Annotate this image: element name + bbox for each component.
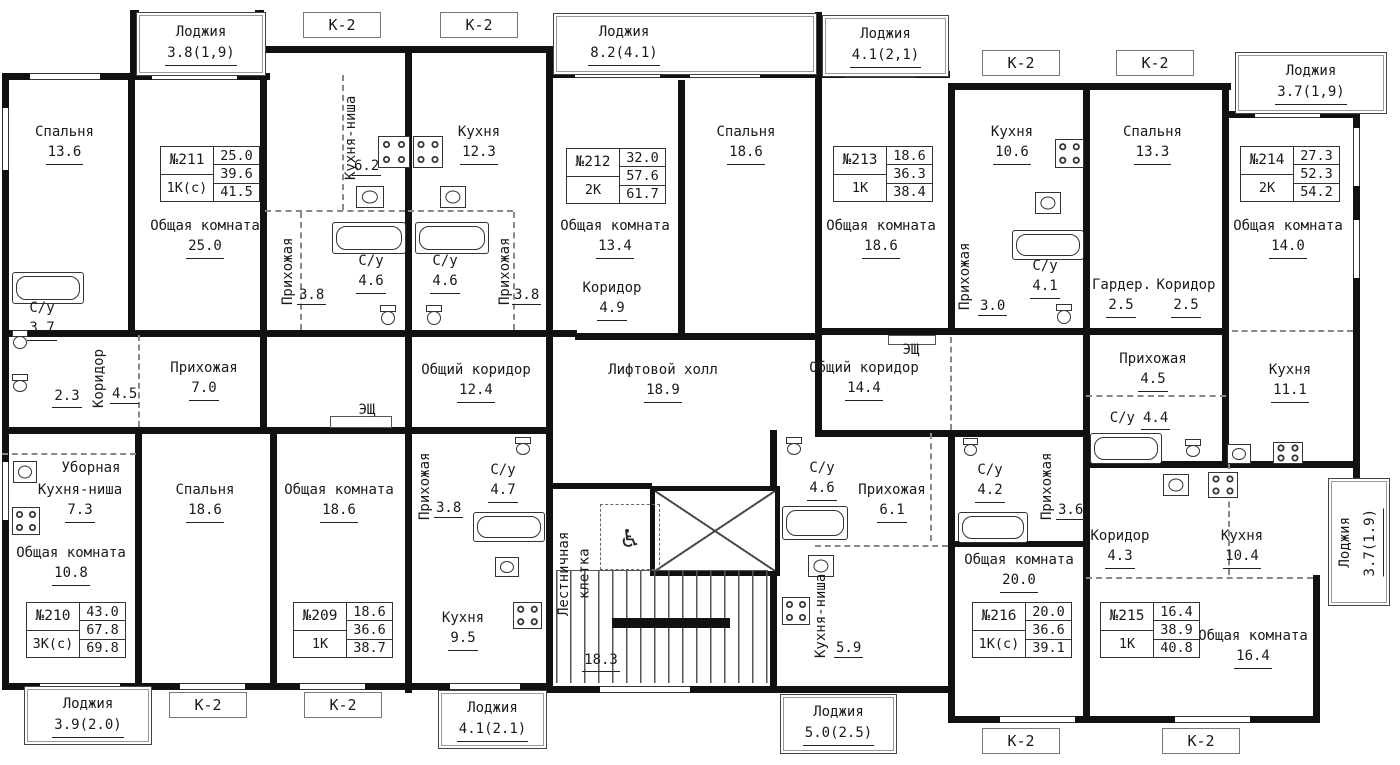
room-label: Общая комната16.4 bbox=[1196, 626, 1310, 669]
stove-icon bbox=[513, 602, 542, 629]
room-label: Спальня13.3 bbox=[1115, 122, 1190, 165]
room-name: Спальня bbox=[1115, 122, 1190, 142]
apartment-type: 2К bbox=[1241, 175, 1293, 202]
room-area-value: 5.9 bbox=[834, 640, 863, 658]
room-label: ЭЩ bbox=[350, 400, 384, 420]
apartment-type: 2К bbox=[567, 177, 619, 204]
room-area-value: 7.0 bbox=[189, 378, 218, 400]
room-area-value: 20.0 bbox=[1000, 570, 1038, 592]
k2-vent-label: К-2 bbox=[440, 12, 518, 38]
room-name: Общая комната bbox=[282, 480, 396, 500]
dashed-partition bbox=[1232, 330, 1353, 332]
stove-icon bbox=[1273, 442, 1303, 464]
balcony-name: Лоджия bbox=[63, 696, 114, 712]
balcony: Лоджия3.7(1.9) bbox=[1328, 478, 1390, 606]
bathtub-icon bbox=[332, 222, 406, 254]
wall bbox=[135, 427, 142, 690]
balcony: Лоджия8.2(4.1) bbox=[553, 13, 817, 75]
stove-icon bbox=[413, 136, 443, 168]
window bbox=[1000, 716, 1075, 723]
room-area-value: 25.0 bbox=[186, 236, 224, 258]
window bbox=[1175, 716, 1250, 723]
room-name: Общая комната bbox=[148, 216, 262, 236]
room-area-value: 2.3 bbox=[52, 386, 81, 408]
room-label: Кухня9.5 bbox=[430, 608, 496, 651]
toilet-icon bbox=[1185, 439, 1201, 457]
apartment-area-total: 38.4 bbox=[887, 184, 932, 201]
room-label: Общая комната25.0 bbox=[148, 216, 262, 259]
sink-icon bbox=[1163, 474, 1189, 496]
k2-vent-label: К-2 bbox=[169, 692, 247, 718]
apartment-info-table: №2122К32.057.661.7 bbox=[566, 148, 666, 204]
room-area-value: 2.5 bbox=[1106, 295, 1135, 317]
dashed-partition bbox=[1086, 577, 1313, 579]
room-label: С/у4.6 bbox=[420, 251, 470, 294]
dashed-partition bbox=[408, 210, 513, 212]
balcony-name: Лоджия bbox=[1335, 517, 1356, 568]
room-area-value: 12.4 bbox=[457, 380, 495, 402]
k2-vent-label: К-2 bbox=[1162, 728, 1240, 754]
balcony: Лоджия4.1(2,1) bbox=[822, 15, 949, 77]
apartment-info-table: №2131К18.636.338.4 bbox=[833, 146, 933, 202]
room-label: Спальня18.6 bbox=[706, 122, 786, 165]
stove-icon bbox=[378, 136, 410, 168]
room-area-value: 14.4 bbox=[845, 378, 883, 400]
wall bbox=[1083, 461, 1090, 723]
room-label: Лестничная клетка bbox=[552, 524, 596, 624]
room-name: Кухня bbox=[978, 122, 1046, 142]
room-name: Кухня-ниша bbox=[28, 480, 132, 500]
room-name: Кухня bbox=[1210, 526, 1274, 546]
window bbox=[1353, 220, 1360, 278]
toilet-icon bbox=[1056, 304, 1072, 324]
room-name: Общая комната bbox=[558, 216, 672, 236]
room-name: С/у bbox=[1110, 410, 1135, 426]
room-area-value: 12.3 bbox=[460, 142, 498, 164]
stove-icon bbox=[782, 597, 810, 625]
k2-vent-label: К-2 bbox=[1116, 50, 1194, 76]
room-label: С/у4.7 bbox=[480, 460, 526, 503]
apartment-area: 52.3 bbox=[1294, 165, 1339, 183]
apartment-area: 67.8 bbox=[80, 621, 125, 639]
room-area: 5.9 bbox=[834, 640, 863, 658]
wall bbox=[948, 430, 955, 723]
room-area-value: 4.5 bbox=[110, 386, 139, 404]
room-label: Общая комната18.6 bbox=[824, 216, 938, 259]
room-name: Прихожая bbox=[1116, 349, 1190, 369]
wall bbox=[405, 46, 412, 434]
room-area-value: 18.6 bbox=[186, 500, 224, 522]
toilet-icon bbox=[12, 374, 28, 392]
room-name: Коридор bbox=[1155, 275, 1217, 295]
k2-vent-label: К-2 bbox=[303, 12, 381, 38]
room-label: Прихожая6.1 bbox=[854, 480, 930, 523]
room-area: 6.2 bbox=[352, 158, 381, 176]
room-name: С/у bbox=[420, 251, 470, 271]
room-area: 3.8 bbox=[434, 500, 463, 518]
apartment-area-total: 38.7 bbox=[347, 640, 392, 657]
apartment-area-living: 43.0 bbox=[80, 603, 125, 621]
room-area-value: 6.2 bbox=[352, 158, 381, 176]
room-area-value: 18.6 bbox=[727, 142, 765, 164]
room-label: С/у4.6 bbox=[346, 251, 396, 294]
apartment-info-table: №2103К(с)43.067.869.8 bbox=[26, 602, 126, 658]
sink-icon bbox=[1227, 444, 1251, 464]
apartment-number: №215 bbox=[1101, 603, 1153, 631]
apartment-area-total: 54.2 bbox=[1294, 184, 1339, 201]
room-name: Прихожая bbox=[278, 236, 298, 306]
room-label: Кухня12.3 bbox=[445, 122, 513, 165]
wall bbox=[2, 330, 577, 337]
apartment-area: 57.6 bbox=[620, 167, 665, 185]
window bbox=[300, 683, 365, 690]
balcony: Лоджия3.7(1,9) bbox=[1235, 52, 1387, 114]
k2-vent-text: К-2 bbox=[1187, 732, 1214, 750]
room-name: Общая комната bbox=[962, 550, 1076, 570]
dashed-partition bbox=[265, 210, 405, 212]
k2-vent-text: К-2 bbox=[1007, 54, 1034, 72]
balcony-area: 3.7(1.9) bbox=[1358, 508, 1384, 576]
room-area: 3.8 bbox=[512, 287, 541, 305]
apartment-number: №210 bbox=[27, 603, 79, 631]
room-area: 3.0 bbox=[978, 298, 1007, 316]
balcony-label: Лоджия8.2(4.1) bbox=[564, 22, 684, 66]
room-area-value: 3.0 bbox=[978, 298, 1007, 316]
balcony-name: Лоджия bbox=[467, 700, 518, 716]
apartment-area-living: 18.6 bbox=[887, 147, 932, 165]
room-area-value: 14.0 bbox=[1269, 236, 1307, 258]
room-area-value: 9.5 bbox=[448, 628, 477, 650]
room-name: Спальня bbox=[22, 122, 107, 142]
sink-icon bbox=[1035, 192, 1061, 214]
apartment-type: 1К(с) bbox=[973, 631, 1025, 658]
room-name: С/у bbox=[1022, 256, 1068, 276]
room-name: Коридор bbox=[1088, 526, 1152, 546]
apartment-number: №213 bbox=[834, 147, 886, 175]
apartment-area: 36.3 bbox=[887, 165, 932, 183]
room-area-value: 7.3 bbox=[65, 500, 94, 522]
room-name: Прихожая bbox=[854, 480, 930, 500]
room-name: Прихожая bbox=[415, 452, 435, 520]
wall bbox=[1313, 575, 1320, 723]
room-label: Прихожая4.5 bbox=[1116, 349, 1190, 392]
sink-icon bbox=[495, 557, 519, 577]
room-label: Кухня11.1 bbox=[1256, 360, 1324, 403]
room-name: Спальня bbox=[706, 122, 786, 142]
k2-vent-label: К-2 bbox=[304, 692, 382, 718]
wheelchair-icon: ♿ bbox=[600, 504, 660, 570]
bathtub-icon bbox=[473, 512, 545, 542]
apartment-area-living: 18.6 bbox=[347, 603, 392, 621]
window bbox=[450, 683, 520, 690]
room-area-value: 4.6 bbox=[356, 271, 385, 293]
room-name: Общая комната bbox=[824, 216, 938, 236]
room-area-value: 3.8 bbox=[297, 287, 326, 305]
wall bbox=[678, 80, 685, 335]
room-name: Прихожая bbox=[1037, 452, 1057, 520]
room-label: Прихожая bbox=[954, 240, 976, 312]
room-area-value: 3.6 bbox=[1056, 502, 1085, 520]
room-name: Коридор bbox=[89, 347, 109, 409]
window bbox=[2, 108, 9, 170]
k2-vent-text: К-2 bbox=[465, 16, 492, 34]
apartment-number: №216 bbox=[973, 603, 1025, 631]
room-label: Прихожая bbox=[1036, 452, 1058, 520]
room-area-value: 13.6 bbox=[46, 142, 84, 164]
dashed-partition bbox=[138, 335, 140, 427]
wall bbox=[815, 328, 1229, 335]
room-label: Кухня10.6 bbox=[978, 122, 1046, 165]
room-label: Коридор2.5 bbox=[1155, 275, 1217, 318]
dashed-partition bbox=[2, 453, 136, 455]
balcony-label: Лоджия3.9(2.0) bbox=[25, 694, 151, 738]
balcony-label: Лоджия3.7(1.9) bbox=[1329, 479, 1389, 605]
room-name: С/у bbox=[480, 460, 526, 480]
balcony-label: Лоджия4.1(2.1) bbox=[439, 698, 546, 742]
apartment-type: 1К bbox=[1101, 631, 1153, 658]
apartment-area-living: 16.4 bbox=[1154, 603, 1199, 621]
window bbox=[2, 462, 9, 520]
room-name: Общий коридор bbox=[808, 358, 920, 378]
room-area-value: 4.6 bbox=[807, 478, 836, 500]
room-name: Лестничная клетка bbox=[554, 524, 595, 624]
room-label: Кухня10.4 bbox=[1210, 526, 1274, 569]
room-name: Кухня bbox=[445, 122, 513, 142]
k2-vent-text: К-2 bbox=[1007, 732, 1034, 750]
room-label: Общий коридор14.4 bbox=[808, 358, 920, 401]
toilet-icon bbox=[380, 305, 396, 325]
toilet-icon bbox=[515, 437, 531, 455]
room-area-value: 4.6 bbox=[430, 271, 459, 293]
balcony-name: Лоджия bbox=[599, 24, 650, 40]
toilet-icon bbox=[963, 438, 978, 456]
room-label: Спальня18.6 bbox=[165, 480, 245, 523]
apartment-number: №212 bbox=[567, 149, 619, 177]
bathtub-icon bbox=[958, 512, 1028, 543]
wall bbox=[405, 427, 412, 693]
room-label: 2.3 bbox=[50, 386, 84, 408]
dashed-partition bbox=[815, 545, 948, 547]
balcony-area: 3.9(2.0) bbox=[52, 715, 123, 738]
dashed-partition bbox=[1086, 395, 1226, 397]
balcony: Лоджия5.0(2.5) bbox=[780, 694, 897, 754]
balcony: Лоджия3.8(1,9) bbox=[136, 12, 266, 76]
window bbox=[600, 686, 690, 693]
room-label: Кухня-ниша7.3 bbox=[28, 480, 132, 523]
room-label: Прихожая bbox=[277, 236, 299, 306]
toilet-icon bbox=[426, 305, 442, 325]
bathtub-icon bbox=[415, 222, 489, 254]
room-name: Уборная bbox=[58, 458, 124, 478]
room-area: 3.8 bbox=[297, 287, 326, 305]
window bbox=[180, 683, 245, 690]
room-area-value: 4.9 bbox=[597, 298, 626, 320]
room-area-value: 10.6 bbox=[993, 142, 1031, 164]
room-name: Общая комната bbox=[14, 543, 128, 563]
room-area-value: 4.3 bbox=[1105, 546, 1134, 568]
wall bbox=[1222, 83, 1229, 468]
apartment-area-total: 69.8 bbox=[80, 640, 125, 657]
apartment-info-table: №2091К18.636.638.7 bbox=[293, 602, 393, 658]
room-name: Прихожая bbox=[955, 240, 975, 312]
room-area-value: 13.3 bbox=[1134, 142, 1172, 164]
balcony-area: 8.2(4.1) bbox=[588, 43, 659, 66]
room-label: Общая комната13.4 bbox=[558, 216, 672, 259]
balcony-name: Лоджия bbox=[1286, 63, 1337, 79]
apartment-area-living: 32.0 bbox=[620, 149, 665, 167]
room-area-value: 4.4 bbox=[1141, 408, 1170, 430]
room-area-value: 11.1 bbox=[1271, 380, 1309, 402]
balcony-name: Лоджия bbox=[860, 26, 911, 42]
k2-vent-label: К-2 bbox=[982, 50, 1060, 76]
apartment-area-total: 41.5 bbox=[214, 184, 259, 201]
room-name: С/у bbox=[20, 298, 64, 318]
wall bbox=[1083, 83, 1090, 468]
room-area-value: 3.8 bbox=[434, 500, 463, 518]
room-name: Общий коридор bbox=[420, 360, 532, 380]
room-area-value: 6.1 bbox=[877, 500, 906, 522]
room-area-value: 4.5 bbox=[1138, 369, 1167, 391]
balcony-area: 4.1(2,1) bbox=[850, 45, 921, 68]
room-area-value: 4.2 bbox=[975, 480, 1004, 502]
wall bbox=[548, 483, 652, 489]
room-name: Кухня bbox=[430, 608, 496, 628]
room-area-value: 4.7 bbox=[488, 480, 517, 502]
room-area-value: 4.1 bbox=[1030, 276, 1059, 298]
room-area-value: 2.5 bbox=[1171, 295, 1200, 317]
room-area-value: 18.3 bbox=[582, 650, 620, 672]
elevator-shaft bbox=[650, 486, 780, 576]
window bbox=[1353, 128, 1360, 186]
k2-vent-text: К-2 bbox=[328, 16, 355, 34]
room-area-value: 16.4 bbox=[1234, 646, 1272, 668]
apartment-type: 1К(с) bbox=[161, 175, 213, 202]
room-area-value: 13.4 bbox=[596, 236, 634, 258]
balcony-label: Лоджия3.7(1,9) bbox=[1236, 61, 1386, 105]
apartment-number: №214 bbox=[1241, 147, 1293, 175]
balcony-area: 5.0(2.5) bbox=[803, 723, 874, 746]
room-label: Кухня-ниша bbox=[810, 572, 832, 660]
apartment-type: 3К(с) bbox=[27, 631, 79, 658]
room-area: 3.6 bbox=[1056, 502, 1085, 520]
balcony-name: Лоджия bbox=[813, 704, 864, 720]
balcony-area: 3.8(1,9) bbox=[165, 43, 236, 66]
room-label: С/у4.2 bbox=[966, 460, 1014, 503]
apartment-number: №211 bbox=[161, 147, 213, 175]
apartment-area-living: 20.0 bbox=[1026, 603, 1071, 621]
room-label: Общая комната10.8 bbox=[14, 543, 128, 586]
room-name: С/у bbox=[966, 460, 1014, 480]
room-label: Уборная bbox=[58, 458, 124, 478]
wall bbox=[772, 686, 952, 693]
wall bbox=[575, 333, 817, 340]
room-label: Коридор4.9 bbox=[578, 278, 646, 321]
room-label: Лифтовой холл18.9 bbox=[606, 360, 720, 403]
room-label: Общая комната18.6 bbox=[282, 480, 396, 523]
room-name: С/у bbox=[346, 251, 396, 271]
k2-vent-text: К-2 bbox=[329, 696, 356, 714]
room-name: ЭЩ bbox=[894, 340, 928, 360]
room-area-value: 10.4 bbox=[1223, 546, 1261, 568]
room-label: Прихожая7.0 bbox=[166, 358, 242, 401]
balcony-label: Лоджия4.1(2,1) bbox=[823, 24, 948, 68]
dashed-partition bbox=[950, 337, 952, 430]
k2-vent-label: К-2 bbox=[982, 728, 1060, 754]
apartment-area: 36.6 bbox=[1026, 621, 1071, 639]
sink-icon bbox=[356, 186, 384, 208]
room-label: Общий коридор12.4 bbox=[420, 360, 532, 403]
room-name: Кухня-ниша bbox=[811, 572, 831, 660]
room-area-value: 10.8 bbox=[52, 563, 90, 585]
room-label: Коридор bbox=[88, 347, 110, 409]
apartment-area: 39.6 bbox=[214, 165, 259, 183]
room-area-value: 18.6 bbox=[862, 236, 900, 258]
wall bbox=[128, 73, 135, 337]
apartment-area-total: 40.8 bbox=[1154, 640, 1199, 657]
room-name: Общая комната bbox=[1196, 626, 1310, 646]
room-name: ЭЩ bbox=[350, 400, 384, 420]
room-label: 18.3 bbox=[580, 650, 622, 672]
room-label: С/у4.4 bbox=[1106, 408, 1174, 430]
balcony-label: Лоджия3.8(1,9) bbox=[137, 22, 265, 66]
room-label: Спальня13.6 bbox=[22, 122, 107, 165]
room-label: С/у3.7 bbox=[20, 298, 64, 341]
apartment-area: 36.6 bbox=[347, 621, 392, 639]
stove-icon bbox=[1055, 139, 1084, 168]
room-name: Лифтовой холл bbox=[606, 360, 720, 380]
window bbox=[30, 73, 100, 80]
room-area-value: 3.7 bbox=[27, 318, 56, 340]
room-area-value: 18.6 bbox=[320, 500, 358, 522]
balcony-label: Лоджия5.0(2.5) bbox=[781, 702, 896, 746]
apartment-area-living: 25.0 bbox=[214, 147, 259, 165]
stairs-rail bbox=[612, 618, 730, 628]
apartment-area-total: 61.7 bbox=[620, 186, 665, 203]
room-name: С/у bbox=[798, 458, 846, 478]
apartment-info-table: №2151К16.438.940.8 bbox=[1100, 602, 1200, 658]
room-name: Коридор bbox=[578, 278, 646, 298]
bathtub-icon bbox=[1090, 433, 1162, 464]
room-area-value: 18.9 bbox=[644, 380, 682, 402]
balcony: Лоджия4.1(2.1) bbox=[438, 690, 547, 749]
balcony-name: Лоджия bbox=[176, 24, 227, 40]
room-name: Общая комната bbox=[1232, 216, 1344, 236]
dashed-partition bbox=[930, 433, 932, 541]
room-name: Прихожая bbox=[166, 358, 242, 378]
room-label: С/у4.6 bbox=[798, 458, 846, 501]
room-label: Коридор4.3 bbox=[1088, 526, 1152, 569]
apartment-info-table: №2142К27.352.354.2 bbox=[1240, 146, 1340, 202]
room-area: 4.5 bbox=[110, 386, 139, 404]
balcony-area: 4.1(2.1) bbox=[457, 719, 528, 742]
room-label: Гардер.2.5 bbox=[1092, 275, 1150, 318]
k2-vent-text: К-2 bbox=[194, 696, 221, 714]
room-name: Гардер. bbox=[1092, 275, 1150, 295]
room-label: Общая комната20.0 bbox=[962, 550, 1076, 593]
apartment-type: 1К bbox=[834, 175, 886, 202]
apartment-number: №209 bbox=[294, 603, 346, 631]
room-label: ЭЩ bbox=[894, 340, 928, 360]
stove-icon bbox=[1208, 472, 1238, 498]
bathtub-icon bbox=[782, 506, 848, 540]
floor-plan: ♿Лоджия3.8(1,9)Лоджия8.2(4.1)Лоджия4.1(2… bbox=[0, 0, 1400, 765]
room-area-value: 3.8 bbox=[512, 287, 541, 305]
apartment-area-total: 39.1 bbox=[1026, 640, 1071, 657]
room-name: Кухня bbox=[1256, 360, 1324, 380]
apartment-area: 38.9 bbox=[1154, 621, 1199, 639]
room-label: С/у4.1 bbox=[1022, 256, 1068, 299]
k2-vent-text: К-2 bbox=[1141, 54, 1168, 72]
